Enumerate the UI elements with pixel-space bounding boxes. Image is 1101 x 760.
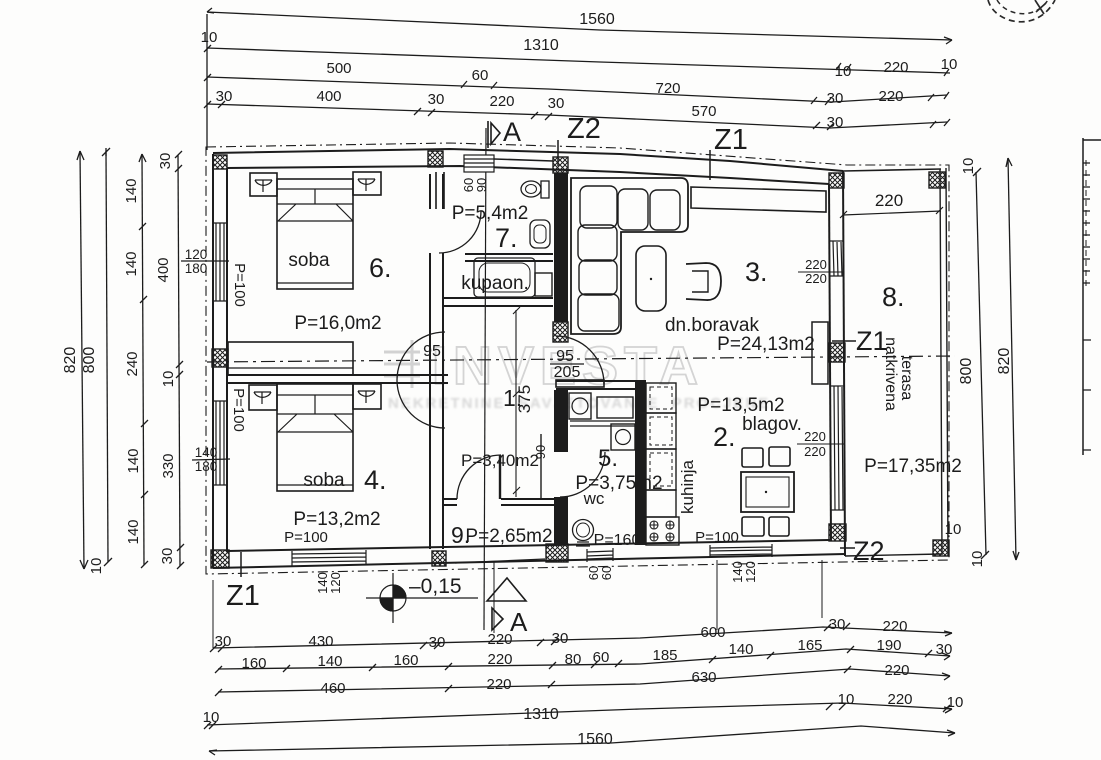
svg-text:blagov.: blagov. xyxy=(742,414,802,435)
svg-text:220: 220 xyxy=(489,93,514,110)
svg-text:90: 90 xyxy=(474,178,489,192)
svg-text:400: 400 xyxy=(155,257,172,282)
svg-text:160: 160 xyxy=(393,652,418,669)
svg-text:Z1: Z1 xyxy=(226,580,260,612)
svg-text:220: 220 xyxy=(804,429,826,444)
svg-text:60: 60 xyxy=(472,67,489,84)
svg-text:600: 600 xyxy=(700,624,725,641)
svg-text:95: 95 xyxy=(556,348,574,365)
svg-text:kupaon.: kupaon. xyxy=(461,273,529,294)
svg-text:220: 220 xyxy=(883,59,908,76)
svg-text:800: 800 xyxy=(81,347,98,374)
svg-text:P=17,35m2: P=17,35m2 xyxy=(864,456,962,477)
svg-text:220: 220 xyxy=(805,257,827,272)
svg-text:220: 220 xyxy=(875,191,903,210)
svg-text:90: 90 xyxy=(533,445,548,459)
svg-text:P=5,4m2: P=5,4m2 xyxy=(452,203,529,224)
svg-text:10: 10 xyxy=(838,691,855,708)
svg-text:kuhinja: kuhinja xyxy=(678,460,697,514)
svg-text:820: 820 xyxy=(62,347,79,374)
svg-text:460: 460 xyxy=(320,680,345,697)
svg-text:A: A xyxy=(503,117,521,147)
svg-text:30: 30 xyxy=(216,88,233,105)
svg-text:220: 220 xyxy=(887,691,912,708)
svg-text:220: 220 xyxy=(884,662,909,679)
svg-text:P=100: P=100 xyxy=(230,388,247,432)
svg-text:10: 10 xyxy=(203,709,220,726)
svg-text:–0,15: –0,15 xyxy=(409,575,462,598)
svg-text:P=100: P=100 xyxy=(695,529,739,546)
svg-text:10: 10 xyxy=(160,371,177,388)
svg-text:7.: 7. xyxy=(495,223,518,253)
svg-text:P=13,2m2: P=13,2m2 xyxy=(293,509,380,530)
svg-text:30: 30 xyxy=(159,548,176,565)
svg-text:10: 10 xyxy=(201,29,218,46)
svg-text:430: 430 xyxy=(308,633,333,650)
svg-text:95: 95 xyxy=(423,343,441,360)
svg-text:P=2,65m2: P=2,65m2 xyxy=(465,526,552,547)
svg-text:P=24,13m2: P=24,13m2 xyxy=(717,334,815,355)
svg-text:220: 220 xyxy=(486,676,511,693)
svg-text:natkrivena: natkrivena xyxy=(882,337,899,411)
svg-text:165: 165 xyxy=(797,637,822,654)
svg-text:220: 220 xyxy=(882,618,907,635)
svg-text:240: 240 xyxy=(124,351,141,376)
svg-text:P=160: P=160 xyxy=(594,532,641,549)
svg-text:P=3,40m2: P=3,40m2 xyxy=(461,451,539,470)
svg-text:160: 160 xyxy=(241,655,266,672)
svg-text:terasa: terasa xyxy=(898,356,915,401)
svg-text:1560: 1560 xyxy=(579,11,615,28)
svg-text:570: 570 xyxy=(691,103,716,120)
svg-text:dn.boravak: dn.boravak xyxy=(665,315,760,336)
svg-text:80: 80 xyxy=(565,651,582,668)
svg-text:140: 140 xyxy=(728,641,753,658)
svg-text:500: 500 xyxy=(326,60,351,77)
svg-text:wc: wc xyxy=(583,489,605,508)
svg-text:720: 720 xyxy=(655,80,680,97)
svg-text:A: A xyxy=(510,607,528,637)
svg-text:140: 140 xyxy=(317,653,342,670)
svg-text:30: 30 xyxy=(215,633,232,650)
svg-text:120: 120 xyxy=(185,247,208,262)
svg-text:10: 10 xyxy=(960,158,977,175)
svg-text:190: 190 xyxy=(876,637,901,654)
svg-text:Z2: Z2 xyxy=(567,113,601,145)
svg-text:820: 820 xyxy=(996,348,1013,375)
svg-text:30: 30 xyxy=(429,634,446,651)
svg-text:1310: 1310 xyxy=(523,706,559,723)
svg-text:400: 400 xyxy=(316,88,341,105)
svg-text:30: 30 xyxy=(936,641,953,658)
svg-text:30: 30 xyxy=(827,90,844,107)
svg-text:4.: 4. xyxy=(364,465,387,495)
svg-text:140: 140 xyxy=(123,251,140,276)
svg-text:1560: 1560 xyxy=(577,731,613,748)
svg-text:60: 60 xyxy=(599,566,614,580)
svg-text:220: 220 xyxy=(487,631,512,648)
svg-text:P=13,5m2: P=13,5m2 xyxy=(697,395,784,416)
svg-text:10: 10 xyxy=(835,63,852,80)
svg-text:10: 10 xyxy=(88,558,105,575)
svg-text:3.: 3. xyxy=(745,257,768,287)
svg-text:220: 220 xyxy=(487,651,512,668)
svg-text:800: 800 xyxy=(958,358,975,385)
svg-text:60: 60 xyxy=(593,649,610,666)
svg-text:30: 30 xyxy=(548,95,565,112)
svg-text:10: 10 xyxy=(969,551,986,568)
svg-text:140: 140 xyxy=(123,178,140,203)
svg-text:180: 180 xyxy=(185,261,208,276)
svg-text:30: 30 xyxy=(829,616,846,633)
svg-text:185: 185 xyxy=(652,647,677,664)
svg-text:6.: 6. xyxy=(369,253,392,283)
svg-text:30: 30 xyxy=(428,91,445,108)
svg-text:1310: 1310 xyxy=(523,37,559,54)
svg-text:220: 220 xyxy=(805,271,827,286)
svg-text:375: 375 xyxy=(515,385,534,413)
svg-text:5.: 5. xyxy=(598,445,618,472)
svg-text:soba: soba xyxy=(288,250,330,271)
svg-text:140: 140 xyxy=(125,519,142,544)
svg-text:8.: 8. xyxy=(882,282,905,312)
svg-text:30: 30 xyxy=(827,114,844,131)
svg-text:120: 120 xyxy=(743,561,758,583)
svg-text:P=100: P=100 xyxy=(284,529,328,546)
svg-text:Z1: Z1 xyxy=(714,124,748,156)
svg-text:330: 330 xyxy=(160,453,177,478)
svg-text:10: 10 xyxy=(941,56,958,73)
svg-text:P=100: P=100 xyxy=(231,263,248,307)
svg-text:140: 140 xyxy=(125,448,142,473)
svg-text:630: 630 xyxy=(691,669,716,686)
svg-text:220: 220 xyxy=(804,444,826,459)
svg-text:10: 10 xyxy=(947,694,964,711)
svg-text:220: 220 xyxy=(878,88,903,105)
svg-text:soba: soba xyxy=(303,470,345,491)
svg-text:2.: 2. xyxy=(713,422,736,452)
svg-text:205: 205 xyxy=(554,364,581,381)
svg-text:120: 120 xyxy=(328,572,343,594)
svg-text:P=16,0m2: P=16,0m2 xyxy=(294,313,381,334)
svg-text:30: 30 xyxy=(552,630,569,647)
svg-text:30: 30 xyxy=(157,153,174,170)
